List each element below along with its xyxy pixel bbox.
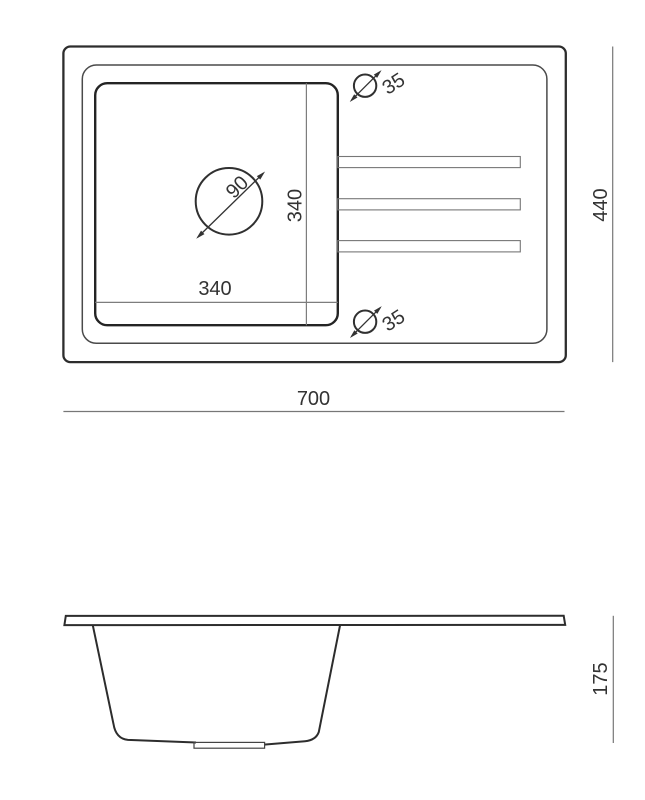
svg-text:340: 340 — [198, 278, 231, 300]
svg-text:175: 175 — [590, 662, 612, 695]
svg-text:440: 440 — [590, 188, 612, 221]
svg-text:340: 340 — [285, 189, 307, 222]
svg-text:700: 700 — [297, 388, 330, 410]
